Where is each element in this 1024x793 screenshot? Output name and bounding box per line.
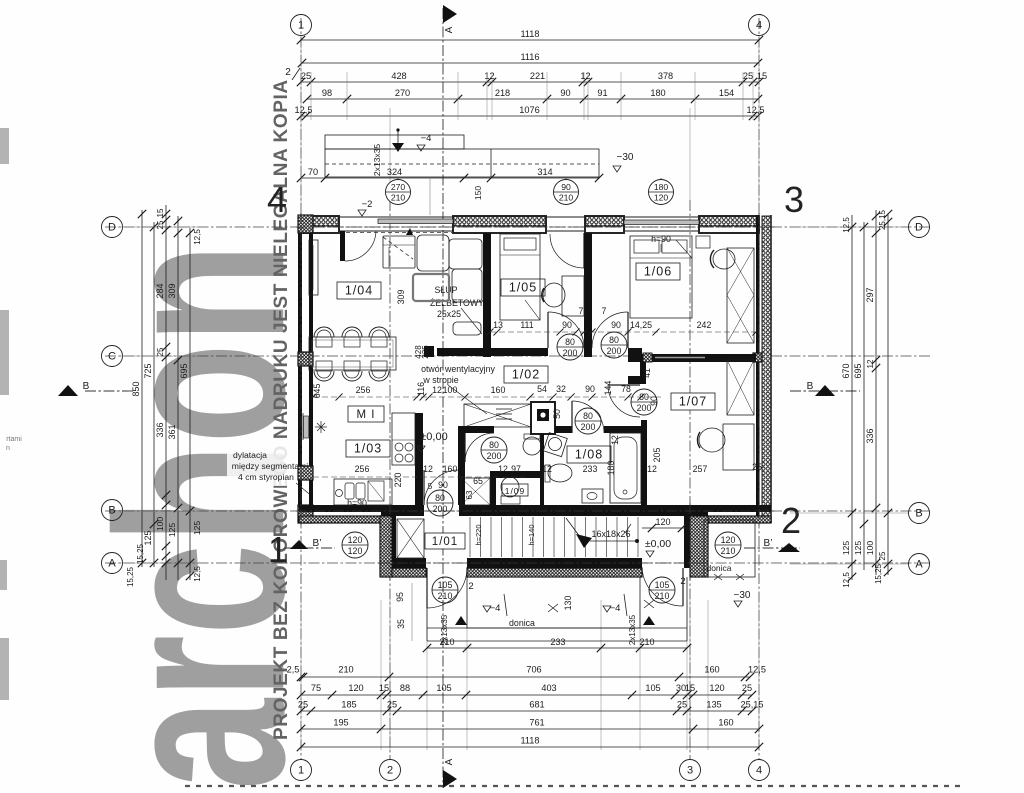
svg-text:1/01: 1/01 (432, 536, 458, 548)
svg-text:100: 100 (443, 385, 458, 395)
svg-text:ŻELBETOWY: ŻELBETOWY (430, 298, 484, 308)
svg-text:B’: B’ (764, 538, 773, 549)
svg-text:15,25: 15,25 (136, 543, 145, 564)
svg-text:25: 25 (752, 462, 762, 472)
svg-text:309: 309 (167, 283, 177, 298)
svg-text:w stropie: w stropie (422, 375, 458, 385)
svg-text:144: 144 (603, 381, 613, 396)
svg-text:25: 25 (677, 700, 687, 710)
svg-text:120: 120 (654, 193, 669, 203)
svg-text:205: 205 (652, 448, 662, 463)
svg-text:88: 88 (400, 683, 410, 693)
svg-text:233: 233 (550, 637, 565, 647)
svg-text:645: 645 (312, 384, 322, 399)
svg-text:695: 695 (179, 363, 189, 378)
svg-text:2,5: 2,5 (287, 665, 300, 675)
svg-text:233: 233 (583, 464, 598, 474)
svg-text:donica: donica (706, 563, 731, 573)
svg-text:12: 12 (580, 71, 590, 81)
svg-text:SŁUP: SŁUP (435, 285, 458, 295)
svg-text:324: 324 (387, 167, 402, 177)
svg-text:125: 125 (143, 530, 153, 545)
svg-text:218: 218 (495, 88, 510, 98)
svg-text:378: 378 (658, 71, 673, 81)
svg-text:−4: −4 (610, 603, 621, 614)
svg-text:670: 670 (841, 363, 851, 378)
svg-text:160: 160 (443, 464, 458, 474)
svg-text:A: A (108, 558, 116, 570)
svg-text:A: A (444, 26, 455, 33)
svg-text:242: 242 (697, 320, 712, 330)
svg-text:3: 3 (687, 765, 693, 777)
svg-text:2x13x35: 2x13x35 (628, 614, 637, 645)
svg-text:125: 125 (841, 541, 851, 556)
svg-text:h=90: h=90 (651, 234, 671, 244)
svg-text:80: 80 (565, 337, 575, 347)
svg-text:200: 200 (433, 504, 448, 514)
svg-text:41: 41 (642, 368, 652, 378)
svg-text:25: 25 (156, 220, 165, 229)
svg-text:403: 403 (541, 683, 556, 693)
svg-text:210: 210 (438, 591, 453, 601)
svg-text:14,25: 14,25 (630, 320, 652, 330)
svg-text:1118: 1118 (520, 736, 539, 746)
svg-text:donica: donica (509, 618, 535, 628)
svg-text:90: 90 (560, 88, 570, 98)
svg-text:160: 160 (718, 718, 733, 728)
svg-text:1118: 1118 (520, 29, 539, 39)
svg-text:80: 80 (489, 440, 499, 450)
svg-text:120: 120 (709, 683, 724, 693)
svg-text:25x25: 25x25 (437, 309, 461, 319)
svg-text:220: 220 (393, 473, 403, 488)
svg-text:15: 15 (156, 208, 165, 217)
svg-text:B: B (83, 381, 90, 392)
svg-text:97: 97 (511, 464, 521, 474)
svg-text:850: 850 (131, 381, 141, 396)
svg-text:16x18x26: 16x18x26 (591, 529, 630, 539)
svg-text:125: 125 (192, 521, 202, 536)
svg-text:90: 90 (562, 320, 572, 330)
svg-text:80: 80 (435, 493, 445, 503)
svg-text:1/02: 1/02 (512, 368, 540, 382)
svg-text:między segmentami: między segmentami (232, 461, 309, 471)
svg-text:725: 725 (143, 363, 153, 378)
svg-text:25: 25 (742, 683, 752, 693)
svg-text:1/07: 1/07 (679, 395, 707, 409)
svg-text:32: 32 (556, 384, 566, 394)
svg-text:314: 314 (537, 167, 552, 177)
svg-text:1076: 1076 (519, 105, 539, 115)
svg-text:A: A (915, 559, 923, 571)
svg-text:105: 105 (655, 580, 670, 590)
svg-text:2x13x35: 2x13x35 (372, 144, 382, 176)
svg-text:761: 761 (529, 718, 544, 728)
svg-text:12,5: 12,5 (747, 105, 765, 115)
svg-text:50: 50 (552, 409, 562, 419)
svg-text:25: 25 (878, 551, 887, 560)
svg-text:15,25: 15,25 (126, 566, 135, 587)
svg-text:1/09: 1/09 (505, 486, 526, 496)
svg-text:98: 98 (322, 88, 332, 98)
svg-text:210: 210 (391, 193, 406, 203)
svg-text:otwór wentylacyjny: otwór wentylacyjny (421, 364, 495, 374)
svg-text:15: 15 (685, 683, 695, 693)
svg-text:90: 90 (561, 182, 571, 192)
svg-text:90: 90 (438, 480, 448, 490)
svg-text:12,5: 12,5 (748, 665, 766, 675)
svg-text:111: 111 (520, 320, 533, 330)
svg-text:1: 1 (298, 20, 304, 32)
svg-text:2: 2 (285, 67, 291, 78)
svg-text:681: 681 (529, 700, 544, 710)
svg-text:25,15: 25,15 (741, 700, 764, 710)
svg-text:25: 25 (387, 700, 397, 710)
svg-text:B’: B’ (313, 538, 322, 549)
svg-text:25,15: 25,15 (878, 209, 887, 230)
svg-text:2: 2 (468, 581, 473, 592)
svg-text:105: 105 (645, 683, 660, 693)
svg-text:1/05: 1/05 (509, 281, 537, 295)
svg-text:361: 361 (167, 424, 177, 439)
svg-text:12,5: 12,5 (842, 572, 851, 588)
svg-text:M I: M I (357, 409, 376, 421)
svg-text:B: B (807, 381, 814, 392)
svg-text:256: 256 (355, 464, 370, 474)
svg-text:−2: −2 (362, 199, 373, 210)
svg-text:75: 75 (311, 683, 321, 693)
svg-text:1: 1 (268, 529, 288, 570)
svg-text:78: 78 (621, 384, 631, 394)
svg-text:4: 4 (756, 765, 762, 777)
svg-text:200: 200 (607, 346, 622, 356)
svg-text:−30: −30 (734, 590, 751, 601)
svg-text:B: B (108, 505, 115, 517)
svg-text:12: 12 (610, 435, 620, 445)
svg-text:91: 91 (597, 88, 607, 98)
svg-text:210: 210 (721, 546, 736, 556)
svg-text:80: 80 (583, 411, 593, 421)
svg-text:1116: 1116 (520, 52, 539, 62)
svg-text:25: 25 (156, 347, 165, 356)
svg-text:12: 12 (423, 464, 433, 474)
svg-text:1/04: 1/04 (345, 284, 373, 298)
svg-text:n: n (6, 445, 10, 452)
svg-text:95: 95 (395, 592, 405, 602)
svg-text:±0,00: ±0,00 (420, 431, 447, 443)
svg-text:180: 180 (654, 182, 669, 192)
svg-text:428: 428 (391, 71, 406, 81)
svg-text:5: 5 (428, 482, 433, 491)
svg-text:695: 695 (853, 363, 863, 378)
svg-text:1/03: 1/03 (354, 442, 382, 456)
svg-text:105: 105 (436, 683, 451, 693)
svg-text:54: 54 (537, 384, 547, 394)
svg-text:12: 12 (432, 385, 442, 395)
svg-text:15: 15 (379, 683, 389, 693)
svg-text:185: 185 (341, 700, 356, 710)
svg-text:210: 210 (439, 637, 454, 647)
svg-text:25: 25 (301, 71, 311, 81)
svg-text:200: 200 (487, 451, 502, 461)
svg-text:160: 160 (704, 665, 719, 675)
svg-text:210: 210 (559, 193, 574, 203)
svg-text:h=90: h=90 (347, 498, 367, 508)
svg-text:3: 3 (784, 179, 804, 220)
svg-text:120: 120 (655, 517, 670, 527)
svg-text:90: 90 (611, 320, 621, 330)
svg-text:12: 12 (647, 464, 657, 474)
svg-text:154: 154 (719, 88, 734, 98)
svg-text:1: 1 (298, 765, 304, 777)
svg-text:12: 12 (542, 464, 552, 474)
svg-text:4: 4 (267, 179, 287, 220)
svg-text:105: 105 (438, 580, 453, 590)
svg-text:180: 180 (650, 88, 665, 98)
svg-text:63: 63 (465, 490, 474, 499)
svg-text:100: 100 (865, 541, 875, 556)
svg-text:257: 257 (693, 464, 708, 474)
svg-text:336: 336 (155, 422, 165, 437)
svg-text:160: 160 (491, 385, 506, 395)
svg-text:rtami: rtami (6, 436, 22, 443)
svg-text:−4: −4 (421, 133, 432, 144)
svg-text:12,5: 12,5 (295, 105, 313, 115)
svg-text:35: 35 (396, 619, 406, 629)
svg-text:dylatacja: dylatacja (233, 450, 267, 460)
svg-text:336: 336 (865, 428, 875, 443)
svg-text:A: A (444, 758, 455, 765)
svg-text:25: 25 (298, 700, 308, 710)
svg-text:125: 125 (167, 523, 177, 538)
svg-text:120: 120 (348, 546, 363, 556)
svg-text:12: 12 (866, 359, 875, 368)
svg-text:210: 210 (639, 637, 654, 647)
svg-text:12,5: 12,5 (842, 217, 851, 233)
svg-text:4: 4 (756, 20, 762, 32)
svg-text:−4: −4 (490, 603, 501, 614)
svg-text:270: 270 (391, 182, 406, 192)
svg-text:12,5: 12,5 (193, 566, 202, 582)
svg-text:706: 706 (526, 665, 541, 675)
svg-text:235: 235 (421, 345, 430, 359)
svg-text:70: 70 (308, 167, 318, 177)
svg-text:210: 210 (655, 591, 670, 601)
svg-text:±0,00: ±0,00 (645, 538, 671, 550)
svg-text:4 cm styropian: 4 cm styropian (238, 472, 294, 482)
svg-text:13: 13 (493, 320, 503, 330)
svg-text:116: 116 (416, 382, 426, 396)
svg-text:C: C (108, 351, 116, 363)
svg-text:1/08: 1/08 (575, 448, 603, 462)
svg-text:125: 125 (853, 541, 863, 556)
svg-text:h=220: h=220 (474, 524, 483, 545)
svg-text:297: 297 (865, 287, 875, 302)
svg-text:270: 270 (395, 88, 410, 98)
svg-text:150: 150 (473, 186, 483, 200)
svg-text:180: 180 (606, 461, 616, 476)
svg-text:195: 195 (333, 718, 348, 728)
svg-text:h=140: h=140 (527, 524, 536, 545)
svg-text:200: 200 (563, 348, 578, 358)
svg-text:1/06: 1/06 (644, 265, 672, 279)
svg-text:120: 120 (348, 535, 363, 545)
svg-text:7: 7 (579, 306, 584, 316)
svg-text:135: 135 (706, 700, 721, 710)
svg-text:90: 90 (585, 384, 595, 394)
svg-text:15,25: 15,25 (874, 563, 883, 584)
svg-text:80: 80 (609, 335, 619, 345)
svg-text:7: 7 (602, 306, 607, 316)
svg-text:309: 309 (396, 290, 406, 305)
svg-text:12: 12 (498, 464, 508, 474)
svg-text:65: 65 (473, 476, 483, 486)
svg-text:12: 12 (484, 71, 494, 81)
svg-text:210: 210 (338, 665, 353, 675)
svg-text:12,5: 12,5 (193, 229, 202, 245)
svg-text:120: 120 (721, 535, 736, 545)
svg-text:D: D (108, 222, 116, 234)
svg-text:130: 130 (563, 596, 573, 611)
svg-text:284: 284 (155, 283, 165, 298)
svg-text:15: 15 (757, 71, 767, 81)
svg-text:90: 90 (649, 396, 659, 406)
svg-text:D: D (915, 222, 923, 234)
svg-text:archon: archon (67, 243, 334, 790)
svg-text:25: 25 (743, 71, 753, 81)
svg-text:2: 2 (680, 576, 685, 587)
svg-text:2: 2 (781, 500, 801, 541)
svg-text:−30: −30 (617, 152, 634, 163)
svg-text:B: B (915, 508, 922, 520)
svg-text:221: 221 (530, 71, 545, 81)
svg-text:100: 100 (155, 517, 165, 532)
svg-text:200: 200 (581, 422, 596, 432)
svg-text:2: 2 (387, 765, 393, 777)
svg-text:120: 120 (348, 683, 363, 693)
svg-text:256: 256 (356, 385, 371, 395)
